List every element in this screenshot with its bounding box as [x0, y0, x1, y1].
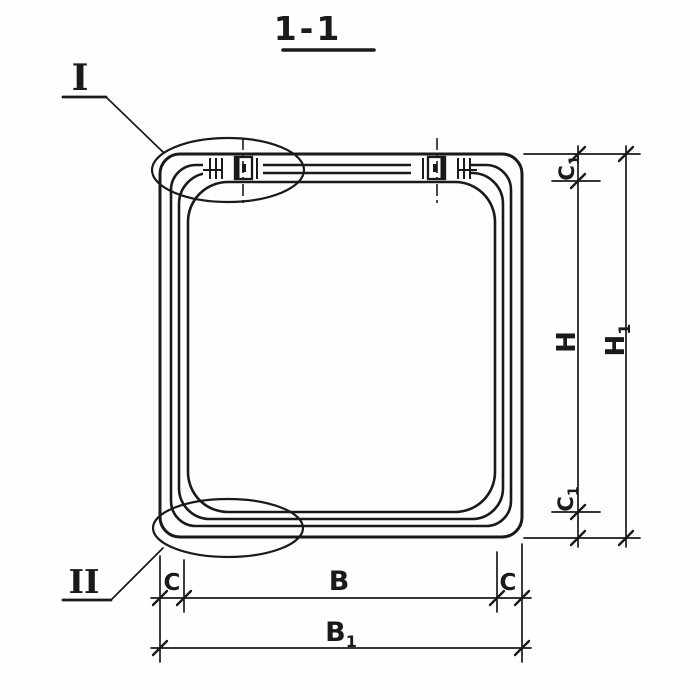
drawing-sheet: I II C1 H H1 C1 [0, 0, 700, 700]
dim-label-C1-bottom: C1 [554, 486, 582, 511]
joint-recess [203, 158, 263, 178]
inner-contour [188, 182, 495, 512]
dim-label-B1: B1 [325, 617, 357, 651]
box-section-contours [160, 154, 522, 537]
dim-label-H1: H1 [601, 324, 634, 357]
joint-anchor-bar [235, 157, 240, 179]
middle-contour-1 [171, 165, 511, 526]
view-title-text: 1-1 [274, 9, 343, 48]
dimension-group-vertical: C1 H H1 C1 [524, 146, 640, 547]
detail-one-label: I [72, 57, 89, 99]
detail-circle-two [153, 499, 303, 557]
view-title: 1-1 [274, 9, 374, 50]
joint-anchor-bar [441, 157, 446, 179]
detail-two-label: II [69, 562, 100, 601]
dim-label-C-left: C [164, 570, 181, 596]
middle-contour-2 [179, 173, 503, 519]
top-joint-right [411, 157, 477, 179]
callout-detail-one: I [63, 57, 164, 153]
dim-label-C1-top: C1 [555, 155, 583, 180]
dim-label-H: H [552, 331, 582, 353]
dimension-group-horizontal: C B C B1 [151, 544, 531, 662]
dim-label-C-right: C [500, 570, 517, 596]
dim-label-B: B [329, 566, 350, 597]
detail-one-leader [106, 97, 164, 153]
top-joint-left [203, 157, 263, 179]
outer-contour [160, 154, 522, 537]
detail-two-leader [111, 548, 163, 600]
callout-detail-two: II [63, 548, 163, 601]
section-drawing: I II C1 H H1 C1 [0, 0, 700, 700]
